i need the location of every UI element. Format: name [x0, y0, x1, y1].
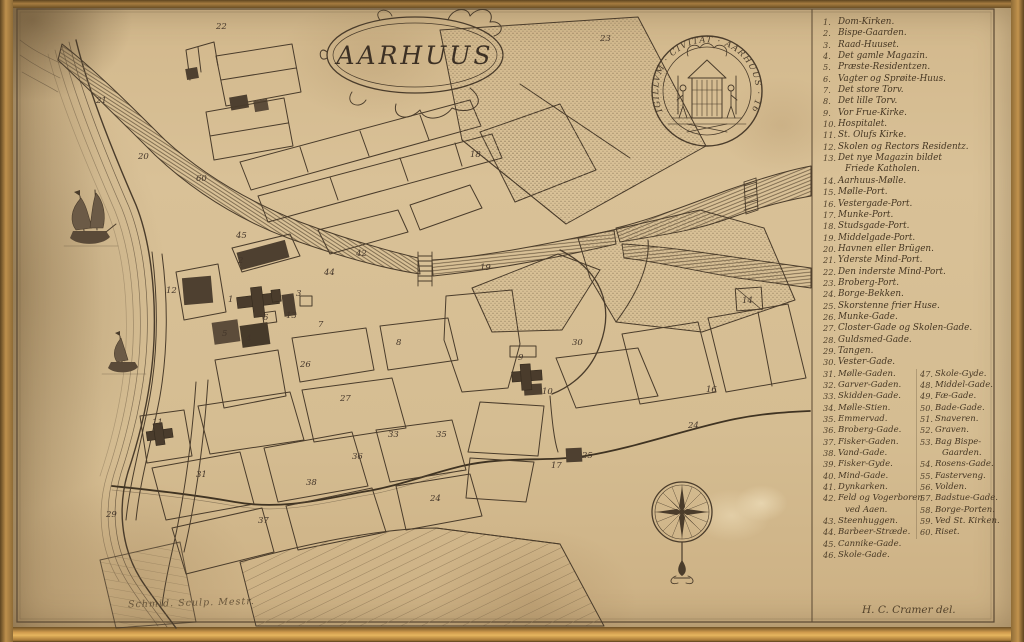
legend-item-label: Bade-Gade.	[935, 403, 985, 414]
legend-item-label: ved Aaen.	[845, 505, 887, 516]
legend-item-number: 45.	[823, 539, 838, 550]
legend-item-label: Vagter og Sprøite-Huus.	[838, 74, 946, 85]
legend-item-label: Snaveren.	[935, 414, 978, 425]
legend-item-number: 41.	[823, 482, 838, 493]
gallows-structure	[185, 42, 218, 80]
brook	[112, 411, 810, 509]
field-east	[472, 210, 795, 332]
legend-item-label: Aarhuus-Mølle.	[838, 176, 906, 187]
legend-item-label: Skole-Gyde.	[935, 369, 986, 380]
legend-item-number: 27.	[823, 323, 838, 334]
legend-item: 17. Munke-Port.	[823, 210, 992, 221]
legend-item-label: Cannike-Gade.	[838, 539, 901, 550]
street-network-centre	[176, 185, 482, 408]
legend-item-number: 21.	[823, 255, 838, 266]
legend-item-label: Fasterveng.	[935, 471, 986, 482]
legend-item: 35. Emmervad.	[823, 414, 916, 425]
legend-item-number: 9.	[823, 108, 838, 119]
legend-item-label: Skorstenne frier Huse.	[838, 301, 940, 312]
legend-item-label: Graven.	[935, 425, 969, 436]
legend-item: 52. Graven.	[920, 425, 1000, 436]
legend-item: 13. Det nye Magazin bildet	[823, 153, 992, 164]
legend-item-label: Middel-Gade.	[935, 380, 993, 391]
legend-item-number: 8.	[823, 96, 838, 107]
legend-item-number: 4.	[823, 51, 838, 62]
legend-item-label: Friede Katholen.	[845, 164, 920, 175]
legend-item-number: 24.	[823, 289, 838, 300]
legend-item: 31. Mølle-Gaden.	[823, 369, 916, 380]
legend-item-number: 56.	[920, 482, 935, 493]
legend-item-number: 16.	[823, 199, 838, 210]
legend-item-number: 42.	[823, 493, 838, 504]
legend-item-label: Garver-Gaden.	[838, 380, 901, 391]
legend-list-right-column: 47. Skole-Gyde. 48. Middel-Gade. 49. Fæ-…	[916, 369, 1000, 539]
legend-item-label: Mølle-Port.	[838, 187, 888, 198]
legend-item-number: 11.	[823, 130, 838, 141]
legend-item-number: 22.	[823, 267, 838, 278]
legend-item: 40. Mind-Gade.	[823, 471, 916, 482]
legend-item-number: 49.	[920, 391, 935, 402]
legend-item-label: Fisker-Gyde.	[838, 459, 893, 470]
legend-item: 30. Vester-Gade.	[823, 357, 992, 368]
legend-list-main: 1. Dom-Kirken. 2. Bispe-Gaarden. 3. Raad…	[823, 17, 992, 369]
legend-item: 6. Vagter og Sprøite-Huus.	[823, 74, 992, 85]
harbour-channel	[58, 44, 420, 274]
legend-item-number: 20.	[823, 244, 838, 255]
legend-item-label: Vester-Gade.	[838, 357, 895, 368]
legend-item-number: 36.	[823, 425, 838, 436]
legend-item: 36. Broberg-Gade.	[823, 425, 916, 436]
legend-item: 37. Fisker-Gaden.	[823, 437, 916, 448]
legend-item: 15. Mølle-Port.	[823, 187, 992, 198]
legend-item-number: 33.	[823, 391, 838, 402]
legend-item: 49. Fæ-Gade.	[920, 391, 1000, 402]
legend-item-label: Borge-Porten.	[935, 505, 995, 516]
legend-item: ved Aaen.	[830, 505, 916, 516]
legend-item-label: Fisker-Gaden.	[838, 437, 899, 448]
legend-item: Gaarden.	[927, 448, 1000, 459]
legend-item-number: 28.	[823, 335, 838, 346]
ploughed-fields	[100, 528, 604, 628]
legend-item-number: 46.	[823, 550, 838, 561]
legend-item-label: Fæ-Gade.	[935, 391, 976, 402]
st-olufs-building	[145, 421, 174, 446]
legend-item-label: Ved St. Kirken.	[935, 516, 1000, 527]
legend-item-label: Munke-Port.	[838, 210, 893, 221]
map-title: AARHUUS	[335, 41, 494, 70]
legend-item: 12. Skolen og Rectors Residentz.	[823, 142, 992, 153]
legend-item: 18. Studsgade-Port.	[823, 221, 992, 232]
legend-item: 56. Volden.	[920, 482, 1000, 493]
legend-item-number: 47.	[920, 369, 935, 380]
legend-item: 26. Munke-Gade.	[823, 312, 992, 323]
legend-item-number: 39.	[823, 459, 838, 470]
legend-item: 11. St. Olufs Kirke.	[823, 130, 992, 141]
cartographer-signature: H. C. Cramer del.	[862, 604, 1002, 616]
legend-item: 5. Præste-Residentzen.	[823, 62, 992, 73]
legend-list-left-column: 31. Mølle-Gaden. 32. Garver-Gaden. 33. S…	[823, 369, 916, 562]
legend-item-label: Bag Bispe-	[935, 437, 981, 448]
legend-item: 41. Dynkarken.	[823, 482, 916, 493]
legend-item-number	[830, 164, 845, 175]
legend-panel: 1. Dom-Kirken. 2. Bispe-Gaarden. 3. Raad…	[814, 10, 994, 622]
legend-item: 57. Badstue-Gade.	[920, 493, 1000, 504]
legend-item: 42. Feld og Vogerboren	[823, 493, 916, 504]
legend-item-number: 57.	[920, 493, 935, 504]
legend-item-number	[927, 448, 942, 459]
legend-item: 28. Guldsmed-Gade.	[823, 335, 992, 346]
legend-item-number: 25.	[823, 301, 838, 312]
legend-item-number: 29.	[823, 346, 838, 357]
legend-item-number: 6.	[823, 74, 838, 85]
legend-item-label: Steenhuggen.	[838, 516, 898, 527]
legend-item-label: Barbeer-Stræde.	[838, 527, 910, 538]
legend-item-number: 7.	[823, 85, 838, 96]
legend-item-label: Emmervad.	[838, 414, 887, 425]
legend-item-label: Det store Torv.	[838, 85, 904, 96]
legend-item-number: 31.	[823, 369, 838, 380]
legend-item-label: Den inderste Mind-Port.	[838, 267, 946, 278]
legend-item: 25. Skorstenne frier Huse.	[823, 301, 992, 312]
legend-item-label: Mølle-Stien.	[838, 403, 890, 414]
legend-item-number: 58.	[920, 505, 935, 516]
legend-item-number: 37.	[823, 437, 838, 448]
legend-item-label: Skidden-Gade.	[838, 391, 901, 402]
legend-item: 22. Den inderste Mind-Port.	[823, 267, 992, 278]
north-blocks	[206, 44, 301, 160]
legend-item-number: 43.	[823, 516, 838, 527]
legend-item: 3. Raad-Huuset.	[823, 40, 992, 51]
legend-item-label: Riset.	[935, 527, 960, 538]
legend-item-label: Vestergade-Port.	[838, 199, 912, 210]
legend-item-number: 18.	[823, 221, 838, 232]
legend-item-number: 5.	[823, 62, 838, 73]
legend-item-label: Rosens-Gade.	[935, 459, 994, 470]
legend-item-number: 2.	[823, 28, 838, 39]
legend-item-label: Bispe-Gaarden.	[838, 28, 907, 39]
legend-item-label: Borge-Bekken.	[838, 289, 904, 300]
legend-item: 39. Fisker-Gyde.	[823, 459, 916, 470]
legend-item: 21. Yderste Mind-Port.	[823, 255, 992, 266]
legend-item-label: Broberg-Gade.	[838, 425, 901, 436]
legend-item-number: 59.	[920, 516, 935, 527]
legend-item: 43. Steenhuggen.	[823, 516, 916, 527]
legend-item: 32. Garver-Gaden.	[823, 380, 916, 391]
legend-item-number: 35.	[823, 414, 838, 425]
legend-item: 44. Barbeer-Stræde.	[823, 527, 916, 538]
legend-item-number: 15.	[823, 187, 838, 198]
legend-item-label: Vor Frue-Kirke.	[838, 108, 907, 119]
legend-item-label: Præste-Residentzen.	[838, 62, 930, 73]
legend-item-number: 32.	[823, 380, 838, 391]
legend-item-label: Gaarden.	[942, 448, 982, 459]
legend-item: 54. Rosens-Gade.	[920, 459, 1000, 470]
legend-item: 58. Borge-Porten.	[920, 505, 1000, 516]
legend-item-number: 30.	[823, 357, 838, 368]
legend-item-label: Vand-Gade.	[838, 448, 887, 459]
legend-item: 46. Skole-Gade.	[823, 550, 916, 561]
framed-antique-map: SIGILLVM · CIVITAT · AARHUUS · 167 AARHU…	[0, 0, 1024, 642]
legend-item: 48. Middel-Gade.	[920, 380, 1000, 391]
legend-item-number: 34.	[823, 403, 838, 414]
legend-item: 10. Hospitalet.	[823, 119, 992, 130]
legend-item-number: 1.	[823, 17, 838, 28]
legend-item-label: Broberg-Port.	[838, 278, 899, 289]
legend-item: 33. Skidden-Gade.	[823, 391, 916, 402]
legend-item: 19. Middelgade-Port.	[823, 233, 992, 244]
legend-item-number: 50.	[920, 403, 935, 414]
legend-item-label: Studsgade-Port.	[838, 221, 909, 232]
legend-item: 60. Riset.	[920, 527, 1000, 538]
legend-item-label: St. Olufs Kirke.	[838, 130, 906, 141]
legend-item: 7. Det store Torv.	[823, 85, 992, 96]
legend-item-number: 12.	[823, 142, 838, 153]
legend-item-number: 13.	[823, 153, 838, 164]
legend-item: 20. Havnen eller Brügen.	[823, 244, 992, 255]
legend-item: 2. Bispe-Gaarden.	[823, 28, 992, 39]
legend-item-label: Skolen og Rectors Residentz.	[838, 142, 969, 153]
legend-item-label: Raad-Huuset.	[838, 40, 899, 51]
legend-item: 9. Vor Frue-Kirke.	[823, 108, 992, 119]
legend-item-label: Det lille Torv.	[838, 96, 897, 107]
legend-item: 8. Det lille Torv.	[823, 96, 992, 107]
legend-item: 53. Bag Bispe-	[920, 437, 1000, 448]
legend-item-number: 60.	[920, 527, 935, 538]
legend-item-number: 48.	[920, 380, 935, 391]
legend-item-number	[830, 505, 845, 516]
legend-item-label: Yderste Mind-Port.	[838, 255, 922, 266]
legend-item-number: 19.	[823, 233, 838, 244]
legend-item-number: 55.	[920, 471, 935, 482]
legend-item-label: Havnen eller Brügen.	[838, 244, 934, 255]
legend-item: 59. Ved St. Kirken.	[920, 516, 1000, 527]
legend-item: 24. Borge-Bekken.	[823, 289, 992, 300]
legend-item-number: 3.	[823, 40, 838, 51]
legend-item: 29. Tangen.	[823, 346, 992, 357]
legend-item-label: Guldsmed-Gade.	[838, 335, 912, 346]
legend-item: 50. Bade-Gade.	[920, 403, 1000, 414]
legend-item-label: Feld og Vogerboren	[838, 493, 923, 504]
legend-item: 55. Fasterveng.	[920, 471, 1000, 482]
legend-item-number: 10.	[823, 119, 838, 130]
legend-item: 1. Dom-Kirken.	[823, 17, 992, 28]
legend-item-number: 51.	[920, 414, 935, 425]
compass-rose-icon	[652, 482, 712, 584]
legend-item-label: Dom-Kirken.	[838, 17, 894, 28]
legend-item-label: Dynkarken.	[838, 482, 888, 493]
legend-item-label: Volden.	[935, 482, 967, 493]
legend-item-number: 23.	[823, 278, 838, 289]
legend-item-label: Hospitalet.	[838, 119, 887, 130]
legend-item-number: 26.	[823, 312, 838, 323]
legend-item-number: 38.	[823, 448, 838, 459]
legend-item-number: 52.	[920, 425, 935, 436]
legend-item-label: Det gamle Magazin.	[838, 51, 928, 62]
legend-item: 38. Vand-Gade.	[823, 448, 916, 459]
legend-item-label: Middelgade-Port.	[838, 233, 915, 244]
legend-item: 23. Broberg-Port.	[823, 278, 992, 289]
legend-item-number: 54.	[920, 459, 935, 470]
legend-item-label: Det nye Magazin bildet	[838, 153, 942, 164]
legend-item-number: 53.	[920, 437, 935, 448]
legend-item: Friede Katholen.	[830, 164, 992, 175]
legend-item: 51. Snaveren.	[920, 414, 1000, 425]
legend-item-label: Mølle-Gaden.	[838, 369, 896, 380]
legend-item: 27. Closter-Gade og Skolen-Gade.	[823, 323, 992, 334]
legend-item-number: 17.	[823, 210, 838, 221]
legend-item: 34. Mølle-Stien.	[823, 403, 916, 414]
legend-item-label: Tangen.	[838, 346, 873, 357]
legend-item-label: Skole-Gade.	[838, 550, 890, 561]
legend-item-label: Closter-Gade og Skolen-Gade.	[838, 323, 972, 334]
legend-item-label: Badstue-Gade.	[935, 493, 998, 504]
legend-item: 4. Det gamle Magazin.	[823, 51, 992, 62]
legend-item-number: 14.	[823, 176, 838, 187]
legend-item: 14. Aarhuus-Mølle.	[823, 176, 992, 187]
legend-item-label: Munke-Gade.	[838, 312, 898, 323]
legend-item: 45. Cannike-Gade.	[823, 539, 916, 550]
legend-item-number: 40.	[823, 471, 838, 482]
legend-item: 47. Skole-Gyde.	[920, 369, 1000, 380]
legend-item-label: Mind-Gade.	[838, 471, 888, 482]
legend-item-number: 44.	[823, 527, 838, 538]
legend-item: 16. Vestergade-Port.	[823, 199, 992, 210]
